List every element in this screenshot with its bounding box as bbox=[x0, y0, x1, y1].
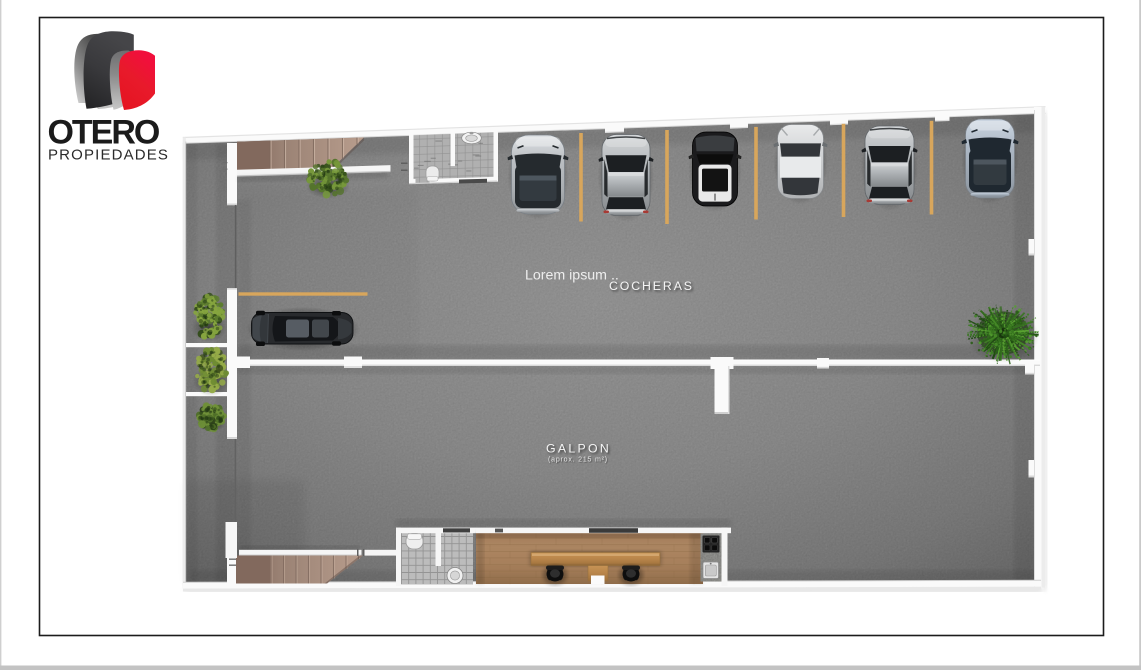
svg-text:(aprox. 215 m²): (aprox. 215 m²) bbox=[548, 457, 608, 464]
svg-text:COCHERAS: COCHERAS bbox=[609, 279, 694, 293]
svg-text:GALPON: GALPON bbox=[546, 442, 611, 456]
svg-text:PROPIEDADES: PROPIEDADES bbox=[48, 146, 169, 163]
svg-text:Lorem ipsum ..: Lorem ipsum .. bbox=[525, 268, 619, 284]
